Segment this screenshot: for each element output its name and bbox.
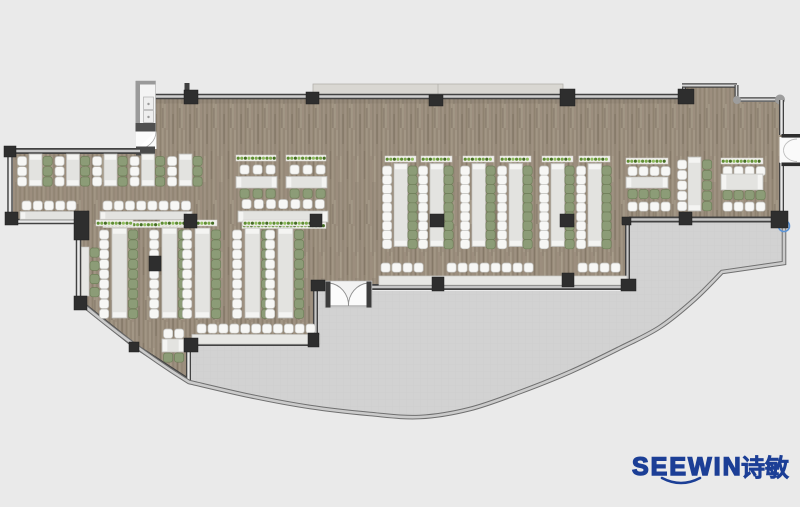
svg-text:SEEWIN: SEEWIN — [632, 453, 743, 481]
svg-text:诗敏: 诗敏 — [741, 455, 789, 482]
